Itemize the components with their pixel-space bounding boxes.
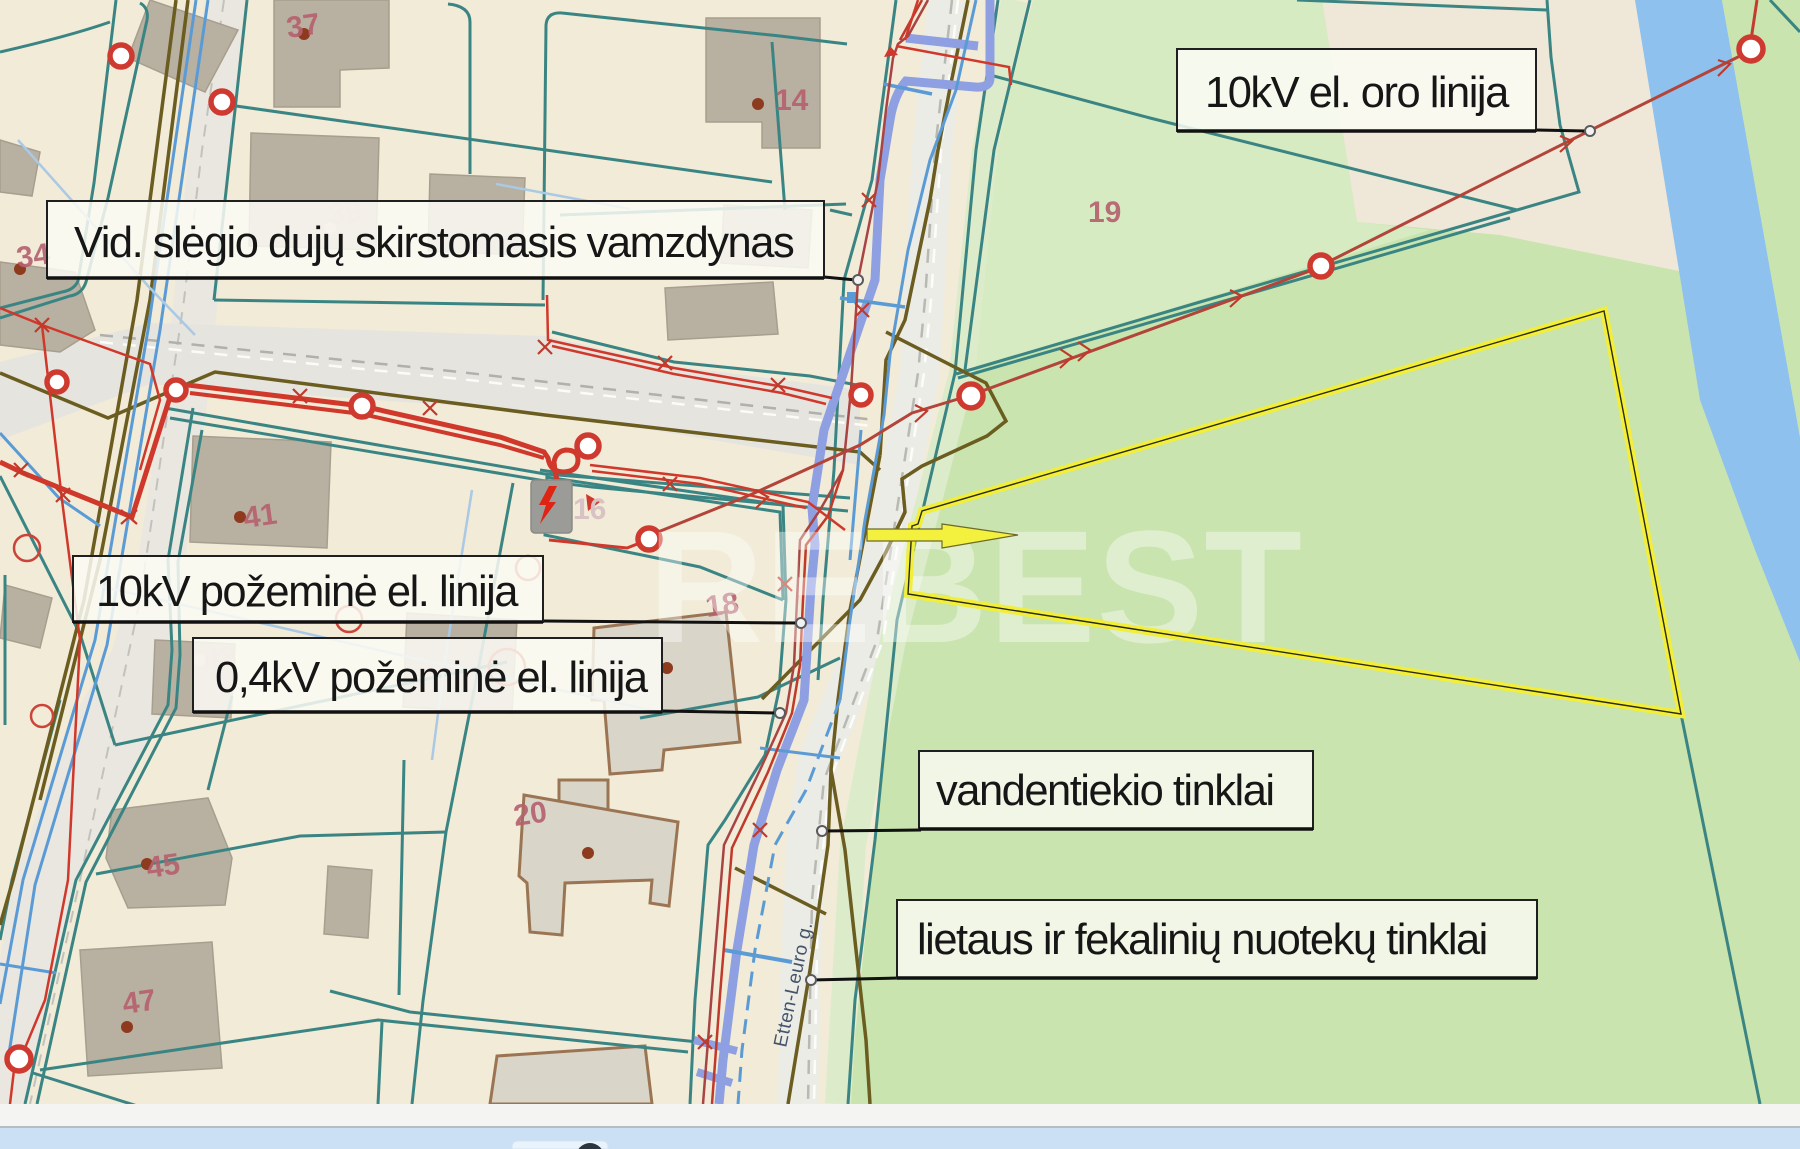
svg-text:lietaus ir fekalinių nuotekų t: lietaus ir fekalinių nuotekų tinklai [917, 916, 1487, 964]
svg-text:45: 45 [144, 848, 182, 885]
svg-text:41: 41 [241, 498, 279, 535]
svg-text:REBEST: REBEST [648, 497, 1303, 676]
svg-text:37: 37 [284, 8, 322, 45]
svg-text:10kV el. oro linija: 10kV el. oro linija [1205, 69, 1510, 117]
svg-text:19: 19 [1088, 196, 1121, 229]
svg-text:47: 47 [120, 984, 158, 1021]
svg-text:10kV požeminė el. linija: 10kV požeminė el. linija [96, 568, 519, 616]
svg-text:20: 20 [511, 796, 549, 833]
svg-text:14: 14 [775, 84, 809, 117]
svg-text:0,4kV požeminė el. linija: 0,4kV požeminė el. linija [215, 654, 649, 702]
svg-text:16: 16 [573, 493, 606, 526]
svg-text:Vid. slėgio dujų skirstomasis: Vid. slėgio dujų skirstomasis vamzdynas [74, 219, 794, 267]
svg-text:vandentiekio tinklai: vandentiekio tinklai [936, 767, 1274, 815]
